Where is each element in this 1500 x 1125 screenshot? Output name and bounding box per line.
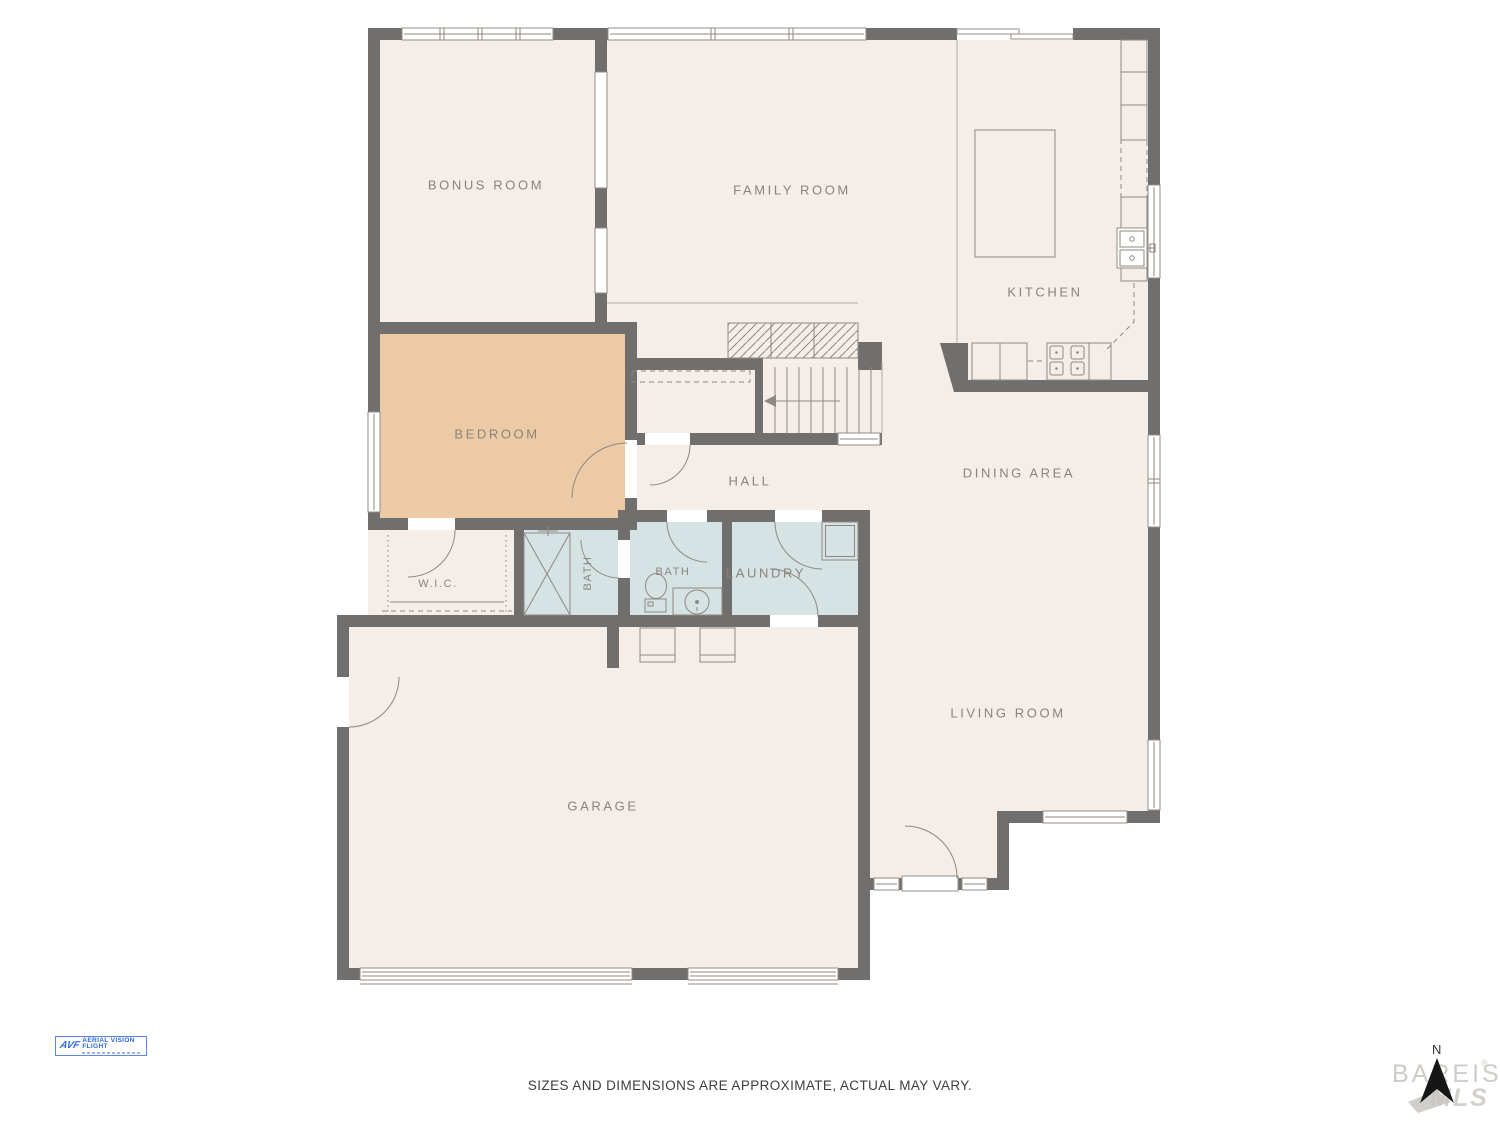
room-label-kitchen: KITCHEN bbox=[1007, 285, 1082, 300]
kitchen-window bbox=[1148, 185, 1160, 278]
laundry-garage-door-opening bbox=[770, 615, 818, 627]
room-label-bath-2: BATH bbox=[656, 566, 691, 578]
floor-plan-drawing: BAREIS ® MLS N bbox=[0, 0, 1500, 1125]
garage-door-left bbox=[360, 968, 632, 984]
room-label-garage: GARAGE bbox=[567, 799, 638, 814]
hall-closet-door-opening bbox=[645, 433, 690, 445]
laundry-door-opening bbox=[775, 510, 822, 522]
bath1-door-opening bbox=[618, 540, 630, 578]
avf-logo-text: AERIAL VISION FLIGHT bbox=[82, 1038, 142, 1055]
floor-areas bbox=[337, 28, 1160, 980]
room-label-laundry: LAUNDRY bbox=[726, 566, 806, 581]
floor-plan-page: BAREIS ® MLS N BONUS ROOMFAMILY ROOMKITC… bbox=[0, 0, 1500, 1125]
room-label-family-room: FAMILY ROOM bbox=[733, 183, 851, 198]
living-room-side-window bbox=[1148, 740, 1160, 810]
room-label-wic: W.I.C. bbox=[418, 578, 458, 590]
room-label-bath-1: BATH bbox=[582, 556, 594, 591]
room-label-dining-area: DINING AREA bbox=[963, 466, 1075, 481]
bedroom-door-opening bbox=[625, 440, 637, 498]
sliding-door bbox=[957, 28, 1073, 40]
stair-base-opening bbox=[838, 433, 880, 445]
front-door-assembly bbox=[874, 876, 987, 891]
avf-tagline-bar bbox=[82, 1052, 140, 1054]
avf-logo-mark: AVF bbox=[59, 1041, 81, 1051]
watermark-reg-mark: ® bbox=[1481, 1058, 1488, 1068]
cased-opening-upper bbox=[595, 72, 607, 188]
dining-window bbox=[1148, 435, 1160, 527]
room-label-bedroom: BEDROOM bbox=[454, 427, 539, 442]
bonus-room-window bbox=[402, 28, 553, 40]
stair-upper-flight-hatch bbox=[728, 323, 858, 358]
cased-opening-lower bbox=[595, 228, 607, 293]
living-room-bottom-window bbox=[1043, 811, 1127, 823]
north-label: N bbox=[1432, 1042, 1441, 1057]
garage-door-right bbox=[688, 968, 838, 984]
room-label-living-room: LIVING ROOM bbox=[950, 706, 1065, 721]
disclaimer-text: SIZES AND DIMENSIONS ARE APPROXIMATE, AC… bbox=[0, 1078, 1500, 1093]
wic-door-opening bbox=[408, 518, 455, 530]
room-label-hall: HALL bbox=[729, 474, 772, 489]
bedroom-window bbox=[368, 412, 380, 512]
front-door-leaf bbox=[902, 876, 958, 891]
room-label-bonus-room: BONUS ROOM bbox=[428, 178, 544, 193]
avf-logo: AVF AERIAL VISION FLIGHT bbox=[55, 1036, 147, 1056]
bath-door-opening bbox=[667, 510, 707, 522]
family-room-window bbox=[608, 28, 866, 40]
avf-brand-name: AERIAL VISION FLIGHT bbox=[82, 1038, 142, 1051]
garage-side-door-opening bbox=[337, 677, 349, 727]
